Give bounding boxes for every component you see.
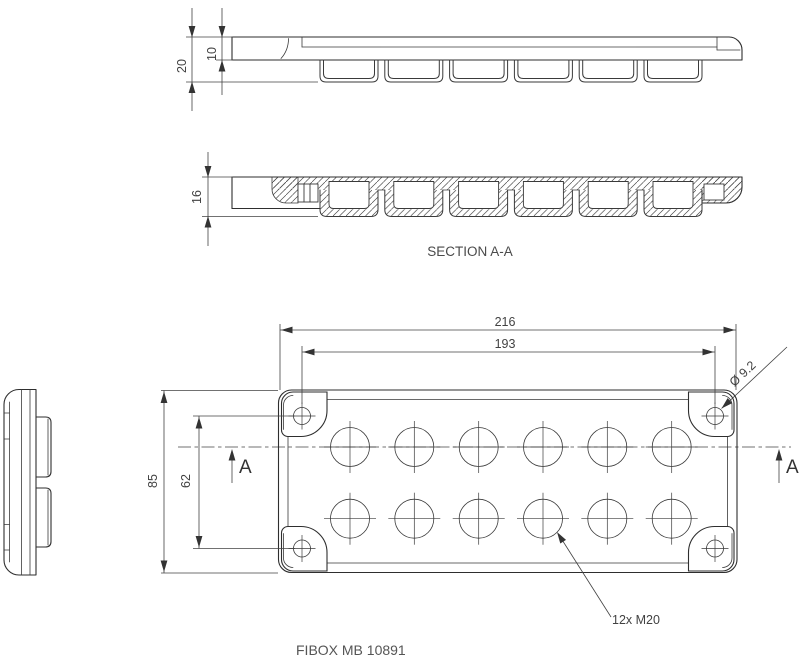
dim-length-holes: 193 (302, 337, 715, 404)
dim-height-cover-value: 10 (205, 47, 219, 61)
plate-inner-edge (288, 400, 728, 564)
dim-length-holes-value: 193 (495, 337, 516, 351)
technical-drawing-canvas: 20 10 (0, 0, 800, 669)
dim-length-outer: 216 (280, 315, 736, 390)
fibox-drawing: 20 10 (0, 0, 800, 669)
dim-width-outer: 85 (146, 391, 278, 574)
section-marker-left: A (229, 449, 252, 483)
side-view-pockets (320, 60, 702, 82)
dim-width-outer-value: 85 (146, 474, 160, 488)
side-view-outline (232, 37, 742, 60)
corner-pads (282, 392, 735, 571)
section-marker-left-label: A (239, 457, 252, 478)
callout-knockouts-value: 12x M20 (612, 613, 660, 627)
callout-corner-hole-dia: Ø 9.2 (719, 347, 787, 411)
dim-height-section-value: 16 (190, 190, 204, 204)
section-marker-right: A (776, 449, 799, 483)
knockout-holes (324, 421, 698, 545)
callout-corner-hole-dia-value: Ø 9.2 (727, 358, 759, 389)
latch-slot-left (298, 184, 318, 202)
plan-view: 216 193 85 62 (146, 315, 799, 627)
end-view-bosses (36, 417, 51, 547)
dim-height-total-value: 20 (175, 59, 189, 73)
dim-width-holes-value: 62 (179, 474, 193, 488)
end-view (4, 390, 51, 576)
drawing-title: FIBOX MB 10891 (296, 642, 406, 658)
dim-width-holes: 62 (179, 416, 295, 549)
plate-outer-edge (279, 390, 738, 573)
dim-length-outer-value: 216 (495, 315, 516, 329)
section-caption: SECTION A-A (427, 244, 513, 259)
section-marker-right-label: A (786, 457, 799, 478)
section-view: 16 SECTION A-A (190, 152, 742, 259)
latch-slot-right (704, 184, 724, 200)
side-view: 20 10 (175, 8, 742, 111)
callout-knockouts: 12x M20 (554, 530, 660, 627)
